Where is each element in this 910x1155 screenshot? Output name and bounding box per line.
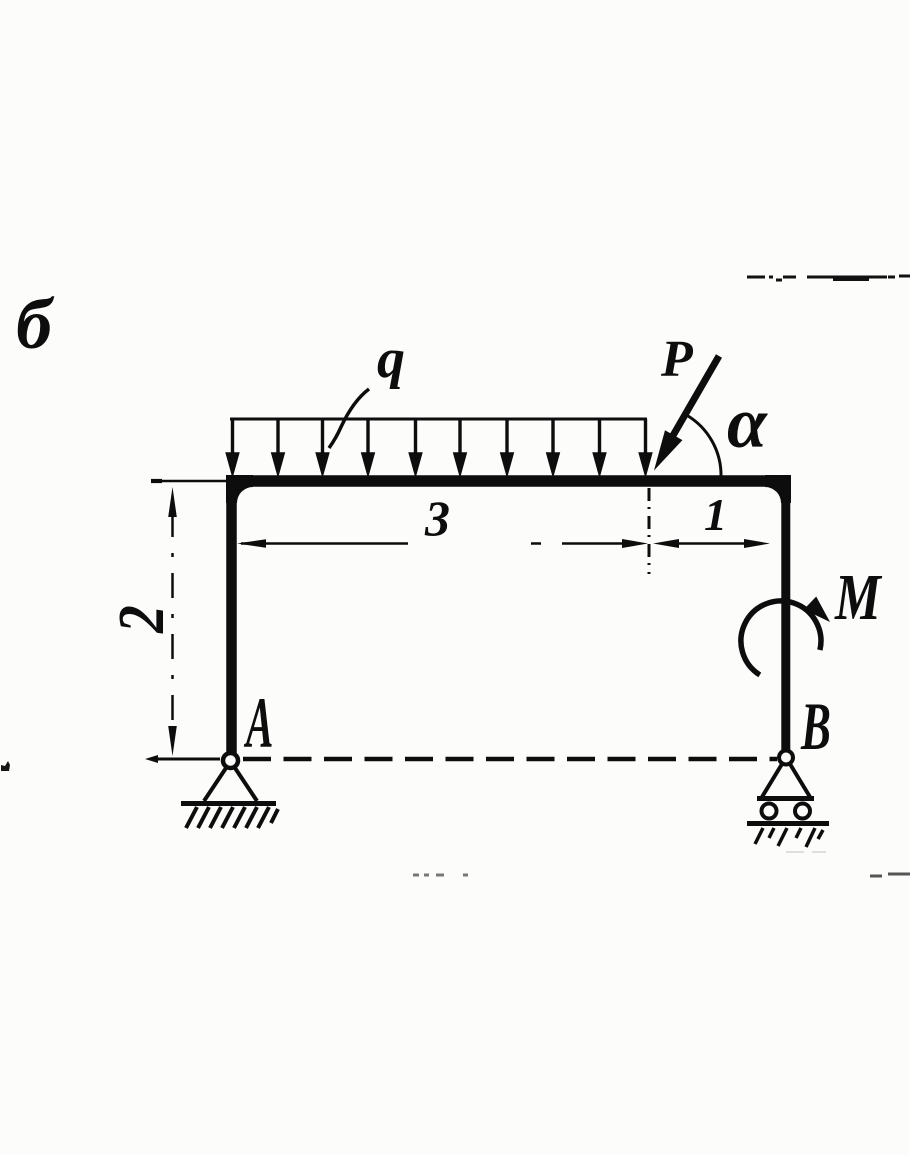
svg-text:B: B: [800, 690, 831, 764]
svg-text:A: A: [243, 683, 273, 763]
svg-text:P: P: [660, 331, 694, 388]
svg-text:б: б: [16, 284, 55, 364]
svg-text:q: q: [377, 328, 405, 390]
svg-text:1: 1: [704, 489, 727, 540]
svg-text:α: α: [727, 383, 768, 463]
svg-text:2: 2: [106, 605, 179, 634]
svg-text:3: 3: [424, 490, 450, 546]
svg-text:M: M: [834, 560, 883, 634]
